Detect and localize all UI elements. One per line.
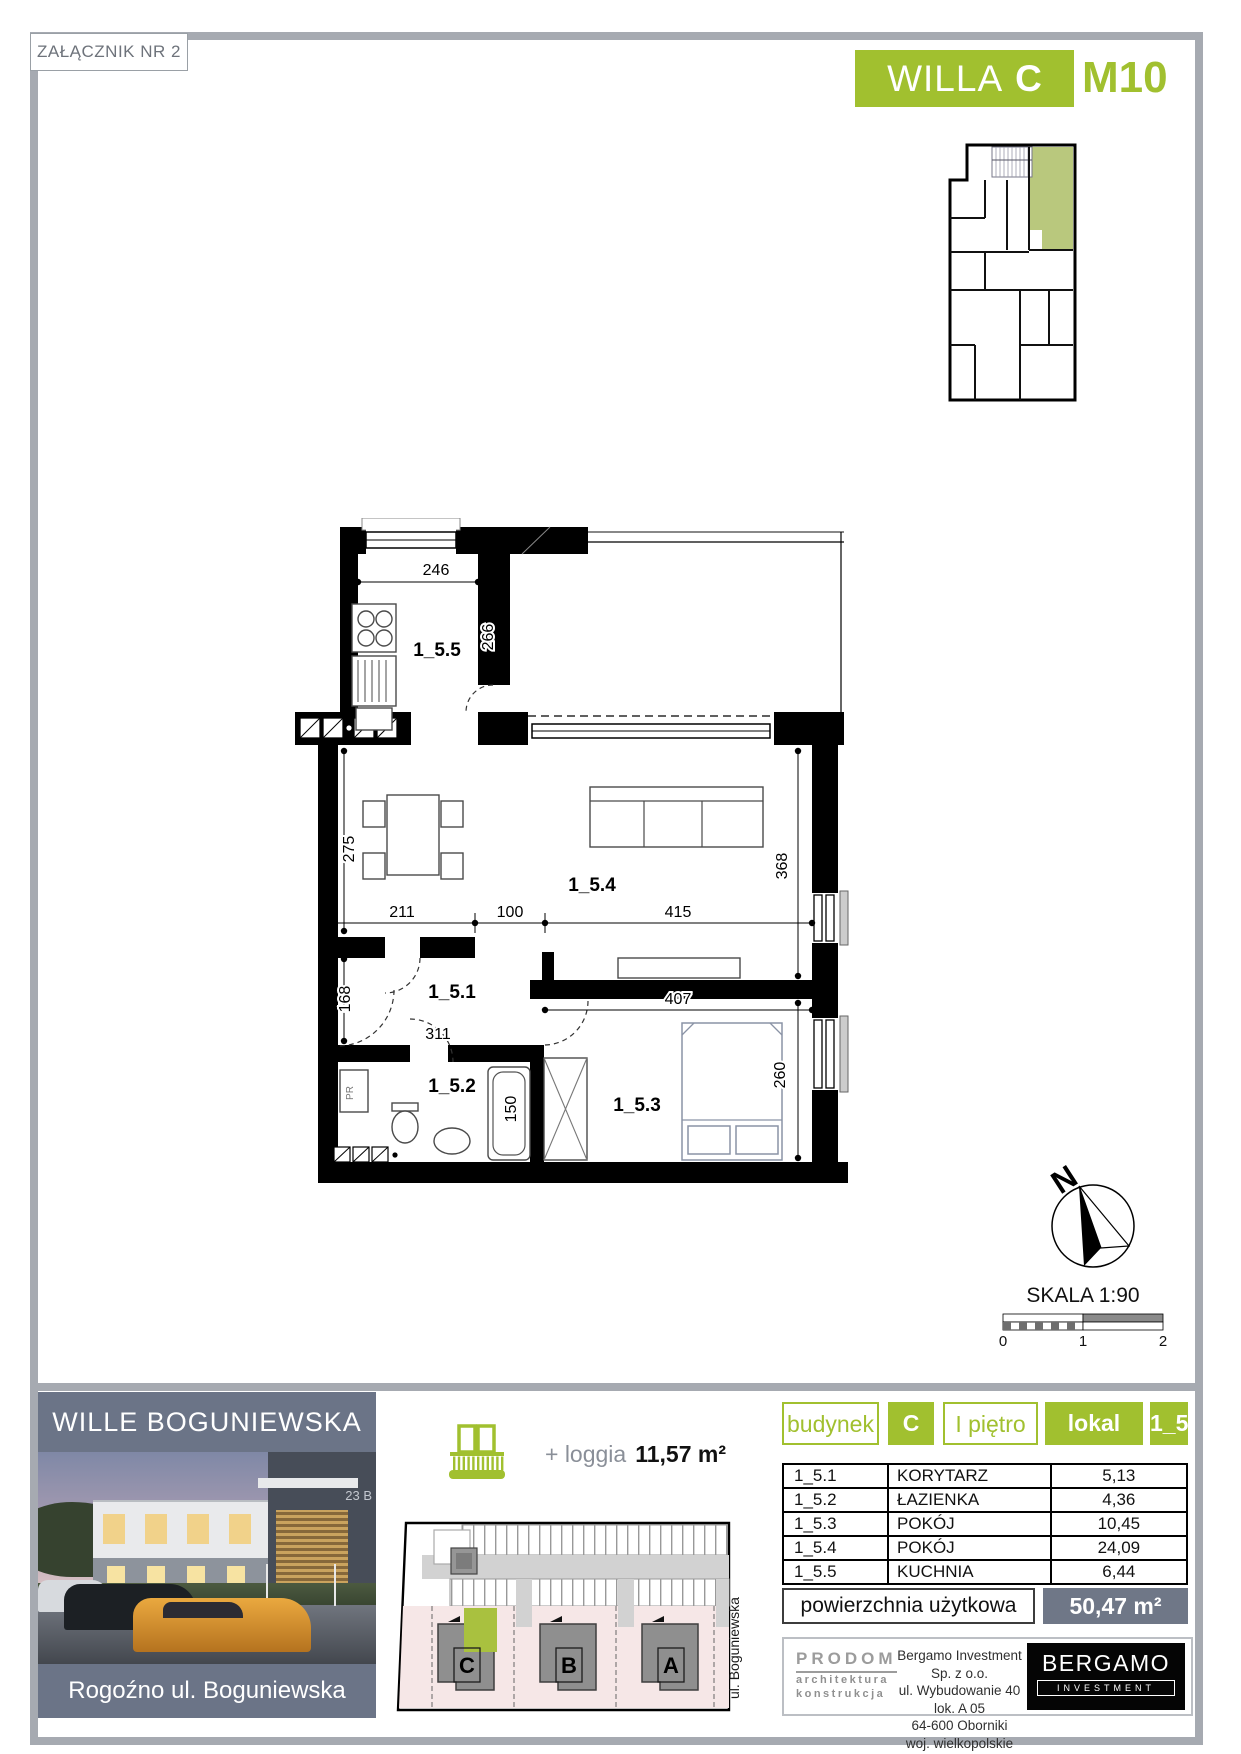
loggia-outline <box>522 527 844 712</box>
tv-cabinet <box>618 958 740 978</box>
kitchen-sink <box>356 708 392 730</box>
room-name: ŁAZIENKA <box>888 1488 1051 1512</box>
room-area: 24,09 <box>1051 1536 1187 1560</box>
photo-lit-windows <box>103 1514 278 1544</box>
dim-bedroom-height: 260 <box>772 1062 789 1089</box>
dim-tub: 150 <box>503 1096 520 1123</box>
tag-building-label: budynek <box>782 1402 879 1445</box>
sink <box>434 1128 470 1154</box>
loggia-label: + loggia <box>545 1441 626 1468</box>
pillow <box>688 1126 730 1154</box>
location-banner: Rogoźno ul. Boguniewska <box>38 1664 376 1718</box>
total-area-label: powierzchnia użytkowa <box>782 1588 1035 1624</box>
street-name: ul. Boguniewska <box>726 1597 742 1699</box>
kitchen-counter <box>352 656 396 706</box>
pillow <box>736 1126 778 1154</box>
project-name-banner: WILLE BOGUNIEWSKA <box>38 1392 376 1452</box>
dim-kitchen-height: 266 <box>480 624 497 651</box>
room-name: POKÓJ <box>888 1536 1051 1560</box>
brand-sub: INVESTMENT <box>1037 1680 1175 1696</box>
room-label-kitchen: 1_5.5 <box>413 640 461 661</box>
photo-lamp <box>334 1564 336 1606</box>
compass-icon: N <box>1035 1150 1155 1270</box>
room-name: POKÓJ <box>888 1512 1051 1536</box>
dim-hall-height: 168 <box>337 986 354 1013</box>
site-unit-highlight <box>464 1608 497 1652</box>
photo-house-number: 23 B <box>345 1488 372 1503</box>
developer-line: woj. wielkopolskie <box>892 1735 1027 1753</box>
room-id: 1_5.2 <box>783 1488 888 1512</box>
project-title: WILLA <box>887 58 1003 100</box>
room-label-bedroom: 1_5.3 <box>613 1095 661 1116</box>
toilet <box>392 1111 418 1143</box>
scale-tick-1: 1 <box>1079 1333 1087 1350</box>
site-letter-c: C <box>459 1653 475 1678</box>
site-plan: C B A ul. Boguniewska <box>396 1520 748 1718</box>
table-row: 1_5.4 POKÓJ 24,09 <box>783 1536 1187 1560</box>
dim-seg-mid: 100 <box>497 904 524 921</box>
brand-name: BERGAMO <box>1027 1643 1185 1677</box>
photo-balcony-slab <box>258 1478 358 1488</box>
closet-label: PR <box>345 1086 356 1100</box>
page: ZAŁĄCZNIK NR 2 WILLA C M10 <box>0 0 1241 1754</box>
architect-sub1: architektura <box>796 1673 892 1687</box>
architect-sub2: konstrukcja <box>796 1687 892 1701</box>
developer-logo: BERGAMO INVESTMENT <box>1027 1643 1185 1710</box>
unit-code: M10 <box>1082 50 1168 107</box>
tag-unit-label: lokal <box>1045 1402 1143 1445</box>
table-row: 1_5.1 KORYTARZ 5,13 <box>783 1464 1187 1488</box>
photo-car-window <box>163 1602 243 1618</box>
loggia-area: 11,57 m² <box>635 1441 726 1468</box>
chair <box>363 853 385 879</box>
rooms-table: 1_5.1 KORYTARZ 5,13 1_5.2 ŁAZIENKA 4,36 … <box>782 1463 1188 1585</box>
developer-line: Bergamo Investment Sp. z o.o. <box>892 1647 1027 1682</box>
dim-living-left: 275 <box>341 836 358 863</box>
dim-hall-width: 311 <box>425 1026 451 1043</box>
balcony-icon <box>447 1424 507 1484</box>
table-row: 1_5.2 ŁAZIENKA 4,36 <box>783 1488 1187 1512</box>
room-area: 6,44 <box>1051 1560 1187 1584</box>
room-id: 1_5.4 <box>783 1536 888 1560</box>
room-label-living: 1_5.4 <box>568 875 616 896</box>
toilet-tank <box>392 1103 418 1111</box>
scale-tick-0: 0 <box>999 1333 1007 1350</box>
chair <box>441 801 463 827</box>
dim-bedroom-width: 407 <box>665 991 692 1008</box>
mini-floorplan <box>945 140 1080 405</box>
scale-label: SKALA 1:90 <box>1026 1284 1139 1307</box>
title-willa-box: WILLA C <box>855 50 1074 107</box>
attachment-label: ZAŁĄCZNIK NR 2 <box>30 33 188 71</box>
scale-bar: SKALA 1:90 0 1 2 <box>995 1282 1175 1352</box>
table-row: 1_5.5 KUCHNIA 6,44 <box>783 1560 1187 1584</box>
room-label-hall: 1_5.1 <box>428 982 476 1003</box>
room-name: KORYTARZ <box>888 1464 1051 1488</box>
main-floorplan: 246 266 275 368 211 100 415 168 311 150 … <box>292 518 850 1186</box>
parking-row <box>450 1579 729 1606</box>
loggia-info: + loggia 11,57 m² <box>545 1424 726 1484</box>
scale-tick-2: 2 <box>1159 1333 1167 1350</box>
section-divider <box>30 1383 1203 1391</box>
furniture <box>340 604 782 1160</box>
room-area: 10,45 <box>1051 1512 1187 1536</box>
room-area: 4,36 <box>1051 1488 1187 1512</box>
developer-line: ul. Wybudowanie 40 lok. A 05 <box>892 1682 1027 1717</box>
site-letter-a: A <box>663 1653 679 1678</box>
room-name: KUCHNIA <box>888 1560 1051 1584</box>
room-label-bath: 1_5.2 <box>428 1076 476 1097</box>
room-id: 1_5.1 <box>783 1464 888 1488</box>
developer-line: 64-600 Oborniki <box>892 1717 1027 1735</box>
chair <box>441 853 463 879</box>
tag-floor: I piętro <box>943 1402 1038 1445</box>
dim-living-right: 368 <box>774 853 791 880</box>
architect-logo: PRODOM architektura konstrukcja <box>796 1639 892 1714</box>
building-letter: C <box>1015 58 1042 100</box>
room-area: 5,13 <box>1051 1464 1187 1488</box>
chair <box>363 801 385 827</box>
footer: PRODOM architektura konstrukcja Bergamo … <box>782 1637 1193 1716</box>
architect-name: PRODOM <box>796 1649 897 1673</box>
tag-unit-value: 1_5 <box>1150 1402 1188 1445</box>
site-letter-b: B <box>561 1653 577 1678</box>
total-area-value: 50,47 m² <box>1043 1588 1188 1624</box>
dim-kitchen-width: 246 <box>423 562 450 579</box>
parking-row <box>462 1525 727 1555</box>
dim-seg-right: 415 <box>665 904 692 921</box>
dim-seg-left: 211 <box>389 904 415 921</box>
tag-building-value: C <box>888 1402 934 1445</box>
photo-wood-slats <box>276 1510 348 1584</box>
sofa <box>590 787 763 847</box>
balcony-railing-bars <box>453 1457 503 1471</box>
room-id: 1_5.5 <box>783 1560 888 1584</box>
photo-car-orange <box>133 1598 311 1652</box>
room-id: 1_5.3 <box>783 1512 888 1536</box>
project-photo: 23 B <box>38 1452 376 1664</box>
developer-address: Bergamo Investment Sp. z o.o. ul. Wybudo… <box>892 1639 1027 1714</box>
table-row: 1_5.3 POKÓJ 10,45 <box>783 1512 1187 1536</box>
dining-table <box>387 795 439 875</box>
